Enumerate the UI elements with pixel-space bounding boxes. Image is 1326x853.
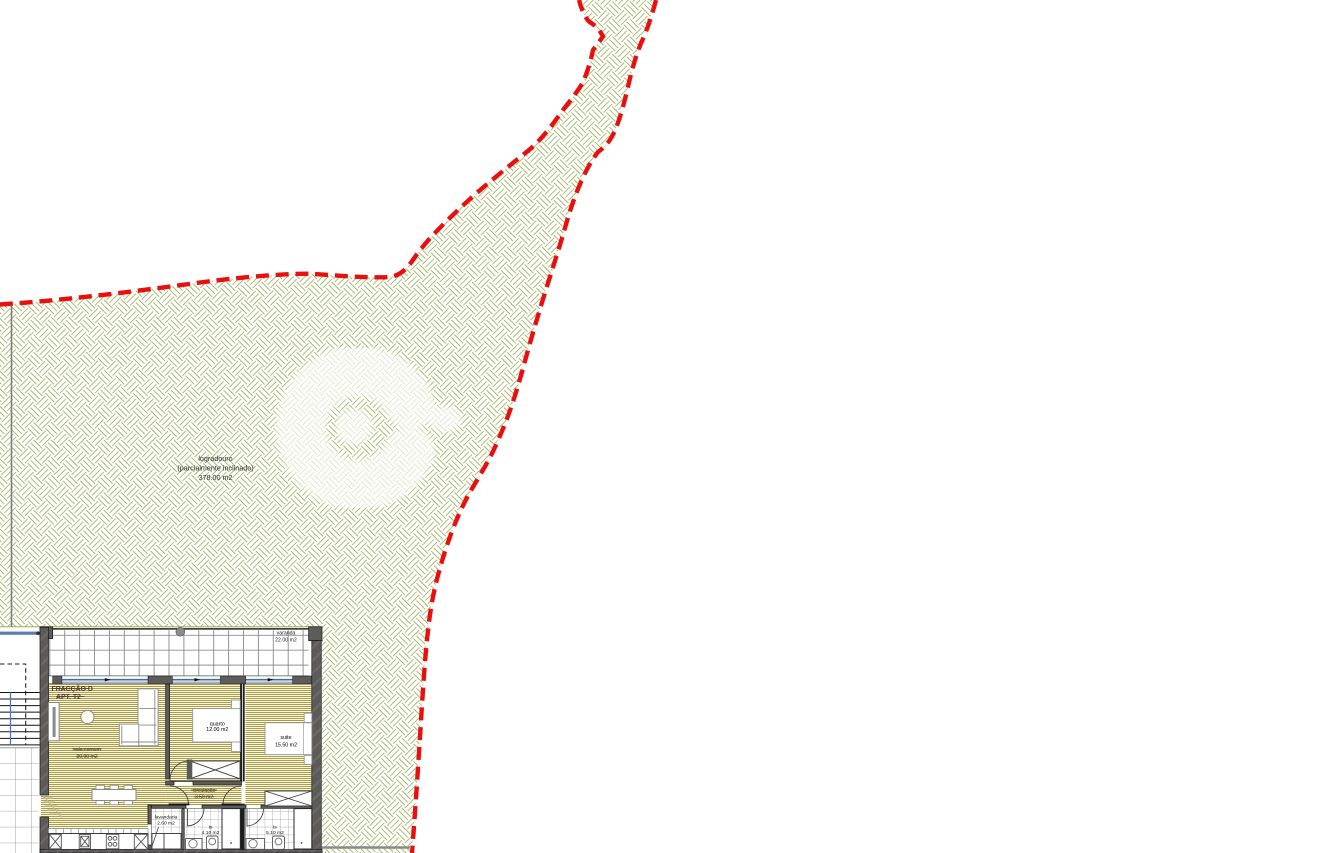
svg-text:30.90 m2: 30.90 m2 xyxy=(76,754,97,760)
svg-text:5.10 m2: 5.10 m2 xyxy=(266,830,284,836)
svg-text:sala comum: sala comum xyxy=(73,747,100,753)
svg-text:(parcialmente inclinado): (parcialmente inclinado) xyxy=(177,464,253,473)
svg-text:3.50 m2: 3.50 m2 xyxy=(195,795,213,801)
svg-text:378.00 m2: 378.00 m2 xyxy=(199,473,233,482)
svg-text:APT. T2: APT. T2 xyxy=(56,694,81,701)
svg-text:is: is xyxy=(273,825,277,831)
svg-text:4.10 m2: 4.10 m2 xyxy=(202,830,220,836)
svg-text:22.00 m2: 22.00 m2 xyxy=(275,638,297,644)
svg-text:suite: suite xyxy=(280,735,291,741)
svg-text:circulação: circulação xyxy=(193,788,216,794)
svg-text:12.00 m2: 12.00 m2 xyxy=(206,727,228,733)
svg-text:15.50 m2: 15.50 m2 xyxy=(275,743,297,749)
svg-text:is: is xyxy=(209,825,213,831)
svg-text:varanda: varanda xyxy=(277,631,296,637)
svg-text:2.60 m2: 2.60 m2 xyxy=(157,821,175,827)
svg-text:logradouro: logradouro xyxy=(198,454,232,463)
svg-text:lavandaria: lavandaria xyxy=(155,815,178,821)
